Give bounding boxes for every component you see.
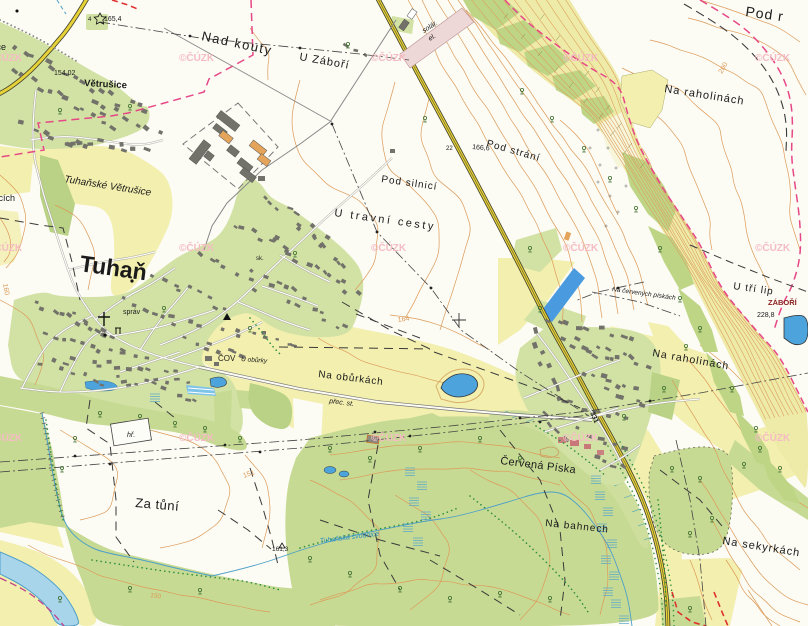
svg-text:©ČÚZK: ©ČÚZK xyxy=(371,51,407,64)
svg-text:©ČÚZK: ©ČÚZK xyxy=(371,431,407,444)
svg-text:©ČÚZK: ©ČÚZK xyxy=(179,431,215,444)
svg-text:161,3: 161,3 xyxy=(272,546,289,553)
svg-text:šicích: šicích xyxy=(0,193,15,203)
svg-text:228,8: 228,8 xyxy=(757,312,775,319)
svg-text:©ČÚZK: ©ČÚZK xyxy=(563,51,599,64)
svg-text:hř.: hř. xyxy=(127,432,135,439)
svg-text:sk.: sk. xyxy=(256,256,264,262)
svg-text:©ČÚZK: ©ČÚZK xyxy=(179,241,215,254)
svg-text:©ČÚZK: ©ČÚZK xyxy=(179,51,215,64)
svg-text:správ: správ xyxy=(123,309,141,316)
svg-text:ZÁBOŘÍ: ZÁBOŘÍ xyxy=(768,298,798,307)
svg-text:ČOV: ČOV xyxy=(218,354,236,363)
svg-text:©ČÚZK: ©ČÚZK xyxy=(0,241,23,254)
svg-text:22: 22 xyxy=(446,146,453,152)
svg-text:©ČÚZK: ©ČÚZK xyxy=(563,431,599,444)
svg-text:©ČÚZK: ©ČÚZK xyxy=(755,431,791,444)
svg-text:Větrušice: Větrušice xyxy=(84,78,127,91)
svg-text:©ČÚZK: ©ČÚZK xyxy=(0,51,23,64)
svg-text:šice: šice xyxy=(0,42,6,52)
svg-text:©ČÚZK: ©ČÚZK xyxy=(0,431,23,444)
svg-text:©ČÚZK: ©ČÚZK xyxy=(755,51,791,64)
svg-text:©ČÚZK: ©ČÚZK xyxy=(563,241,599,254)
svg-text:©ČÚZK: ©ČÚZK xyxy=(755,241,791,254)
svg-text:154,02: 154,02 xyxy=(54,70,76,77)
svg-text:©ČÚZK: ©ČÚZK xyxy=(371,241,407,254)
svg-text:165,4: 165,4 xyxy=(104,16,122,23)
